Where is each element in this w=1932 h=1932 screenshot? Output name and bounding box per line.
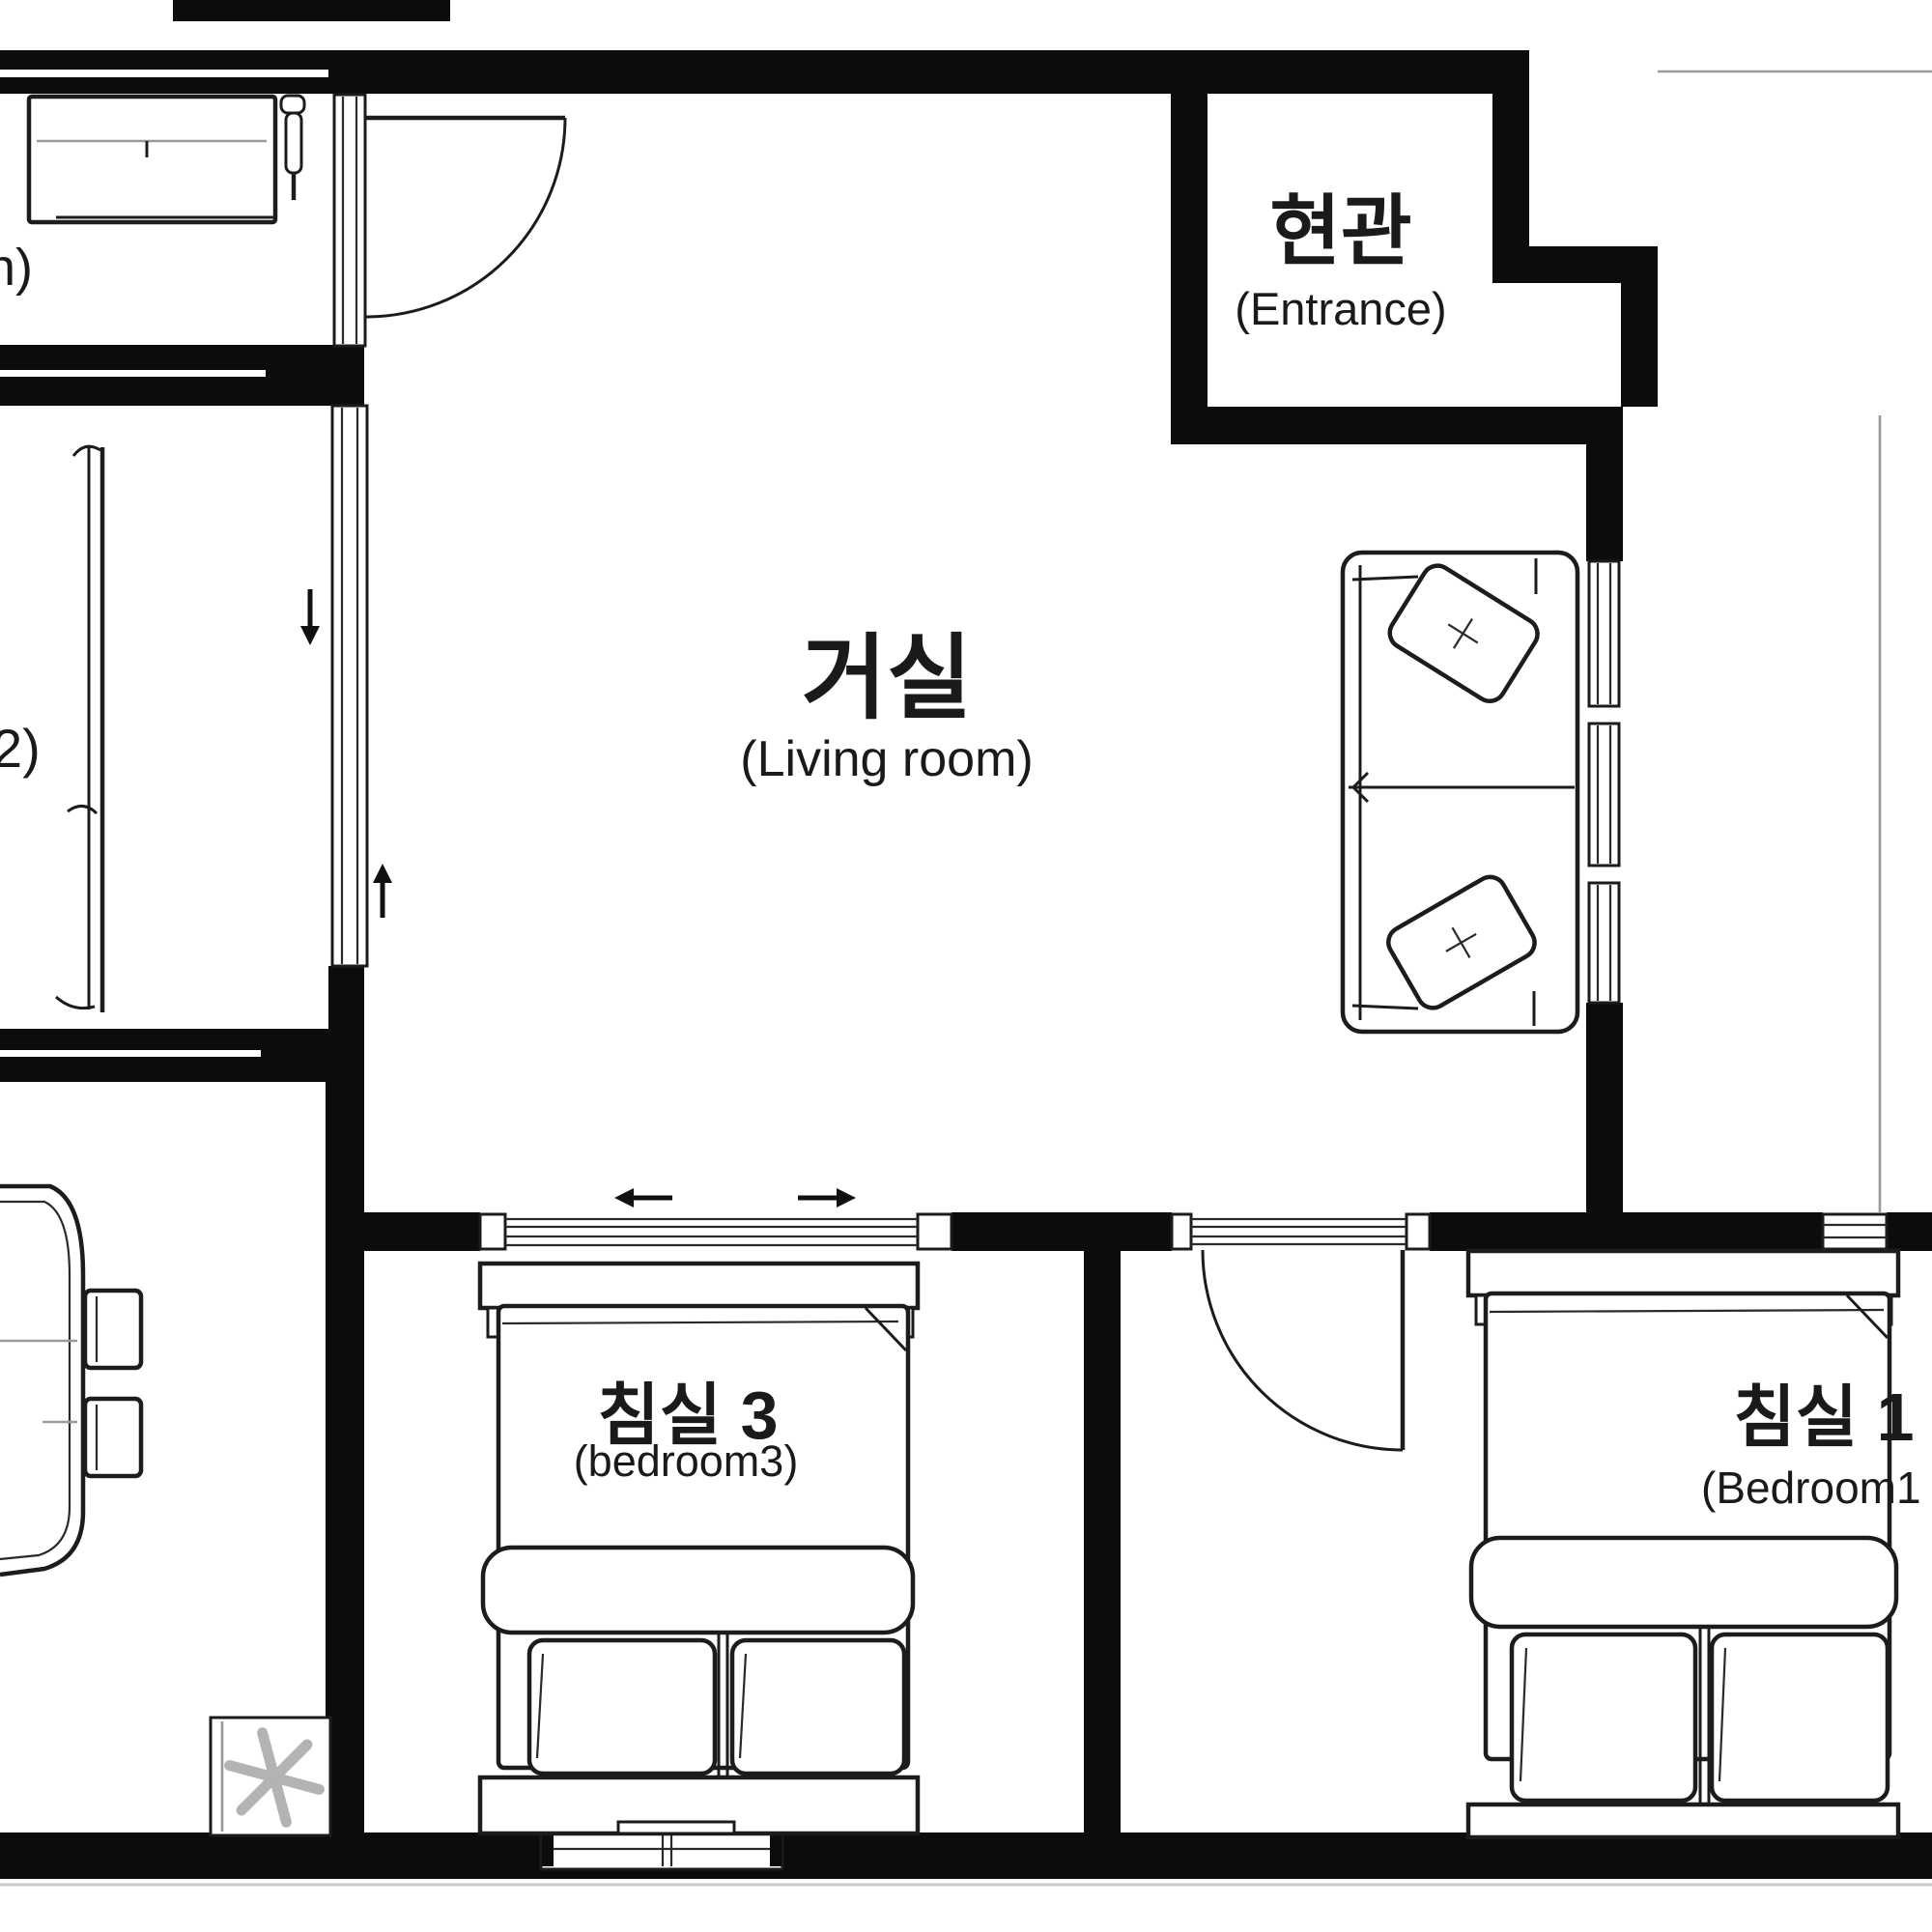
sliding-glass-panel	[332, 406, 367, 966]
wall-entrance-step-h	[1529, 246, 1658, 283]
slide-arrow-up	[373, 864, 392, 918]
bathroom-door	[334, 95, 565, 346]
door-swing-arc	[366, 118, 565, 317]
blanket-roll	[483, 1548, 913, 1633]
right-wall-windows	[1589, 561, 1619, 1003]
wall-bedroom1-top-edge	[1887, 1212, 1932, 1251]
wall-right-upper-block	[1586, 407, 1623, 561]
tub-outline	[29, 97, 275, 222]
wall-bedroom1-top-right	[1430, 1212, 1823, 1251]
sofa	[1343, 553, 1577, 1032]
window-end-post	[770, 1832, 781, 1866]
entrance-label-en: (Entrance)	[1235, 286, 1446, 331]
window-frame	[1823, 1214, 1887, 1249]
wall-bedroom3-bedroom1-divider	[1084, 1251, 1121, 1833]
blanket-curl	[73, 446, 100, 456]
bed-footboard	[480, 1264, 918, 1308]
blanket-curl	[68, 806, 97, 813]
entrance-label-kr: 현관	[1269, 193, 1411, 270]
wall-livingroom-bottom-mid	[952, 1212, 1172, 1251]
jamb-right	[1406, 1214, 1430, 1249]
pillow	[1512, 1634, 1695, 1801]
slide-arrow-down	[300, 589, 320, 645]
wall-top-cavity-line	[0, 70, 328, 77]
chair	[85, 1399, 141, 1476]
jamb-right	[918, 1214, 952, 1249]
pillow	[732, 1640, 904, 1774]
pillow	[529, 1640, 715, 1774]
sliding-partition-left	[300, 406, 392, 966]
floor-plan: 거실 (Living room) 현관 (Entrance) 침실 3 (bed…	[0, 0, 1932, 1932]
wall-entrance-bottom	[1171, 407, 1623, 444]
wall-top-fragment	[173, 0, 450, 21]
jamb-left	[1172, 1214, 1191, 1249]
door-panel	[334, 95, 365, 346]
wall-divider-cavity-line	[0, 370, 266, 377]
bed-footboard	[1468, 1251, 1898, 1295]
headboard-detail	[618, 1822, 734, 1833]
pillow	[1712, 1634, 1888, 1801]
faucet-body	[286, 113, 301, 173]
bedroom2-bed-partial	[56, 446, 102, 1012]
wall-divider2-cavity-line	[0, 1050, 261, 1057]
bedroom3-bed	[480, 1264, 918, 1833]
bedroom2-label-fragment: 2)	[0, 722, 41, 776]
dining-table	[0, 1186, 141, 1575]
bathtub	[29, 96, 304, 222]
floorplan-canvas	[0, 0, 1932, 1932]
faucet-head	[281, 96, 304, 113]
jamb-left	[480, 1214, 505, 1249]
living-room-label-kr: 거실	[802, 633, 973, 725]
bedroom1-top-window	[1823, 1214, 1887, 1249]
bedroom3-label-en: (bedroom3)	[574, 1439, 799, 1483]
window-segment	[1589, 883, 1619, 1003]
ac-unit	[211, 1718, 330, 1835]
bedroom1-bed	[1468, 1251, 1898, 1837]
slide-arrow-right	[798, 1188, 856, 1207]
wall-right-lower-block	[1586, 1003, 1623, 1249]
bed-headboard	[1468, 1804, 1898, 1837]
slide-arrow-left	[614, 1188, 672, 1207]
bedroom1-door	[1172, 1212, 1430, 1450]
bedroom3-sliding-door	[480, 1188, 952, 1251]
wall-entrance-step-v1	[1492, 94, 1529, 283]
wall-entrance-step-v2	[1621, 283, 1658, 407]
door-swing-arc	[1203, 1250, 1403, 1450]
living-room-label-en: (Living room)	[740, 734, 1033, 784]
window-segment	[1589, 724, 1619, 866]
bathroom-label-fragment: h)	[0, 241, 33, 294]
blanket-roll	[1471, 1538, 1896, 1627]
wall-entrance-left	[1171, 94, 1207, 444]
bedroom1-label-en: (Bedroom1	[1701, 1465, 1921, 1510]
chair	[85, 1291, 141, 1368]
window-end-post	[542, 1832, 554, 1866]
bedroom1-label-kr: 침실 1	[1733, 1383, 1914, 1451]
window-segment	[1589, 561, 1619, 706]
